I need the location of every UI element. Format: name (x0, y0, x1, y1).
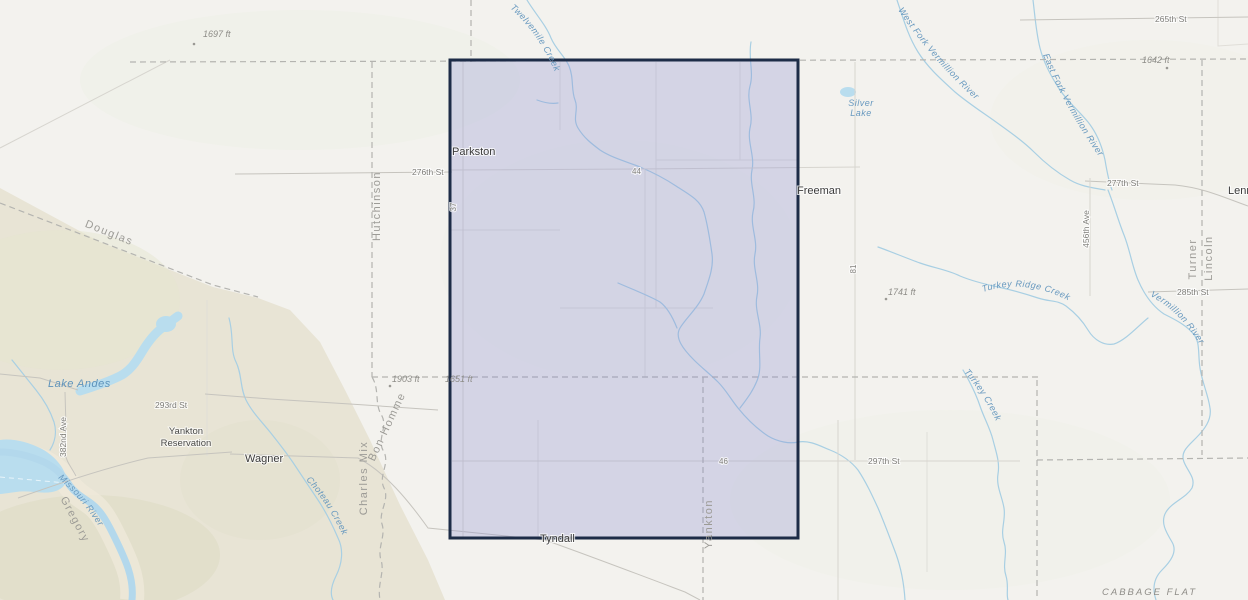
city-label-lennox: Lennox (1228, 185, 1248, 197)
map-viewport[interactable]: Parkston Freeman Lennox Wagner Tyndall Y… (0, 0, 1248, 600)
city-label-tyndall: Tyndall (540, 533, 575, 545)
silver-lake-waterbody (840, 87, 856, 97)
area-label-cabbage-flat: CABBAGE FLAT (1102, 587, 1197, 598)
road-label-382nd-ave: 382nd Ave (58, 417, 68, 457)
road-label-277th-st: 277th St (1107, 178, 1139, 188)
road-label-276th-st: 276th St (412, 167, 444, 177)
elevation-label-1903: 1903 ft (392, 374, 420, 384)
area-label-yankton-reservation-line1: Yankton (169, 426, 203, 437)
county-label-yankton: Yankton (703, 499, 715, 549)
road-label-293rd-st: 293rd St (155, 400, 188, 410)
elevation-label-1642: 1642 ft (1142, 55, 1170, 65)
county-label-hutchinson: Hutchinson (371, 171, 383, 241)
lake-label-silver-lake-line2: Lake (850, 108, 872, 118)
highway-label-44: 44 (632, 167, 641, 176)
selection-rectangle[interactable] (450, 60, 798, 538)
map-canvas[interactable]: Parkston Freeman Lennox Wagner Tyndall Y… (0, 0, 1248, 600)
lake-label-lake-andes: Lake Andes (48, 378, 111, 390)
road-label-285th-st: 285th St (1177, 287, 1209, 297)
elevation-label-1697: 1697 ft (203, 29, 231, 39)
road-label-265th-st: 265th St (1155, 14, 1187, 24)
highway-label-81: 81 (849, 264, 858, 273)
area-label-yankton-reservation-line2: Reservation (161, 438, 212, 449)
city-label-parkston: Parkston (452, 146, 495, 158)
county-label-turner: Turner (1187, 239, 1199, 280)
highway-label-37: 37 (449, 202, 458, 211)
county-label-lincoln: Lincoln (1203, 235, 1215, 280)
road-label-456th-ave: 456th Ave (1081, 210, 1091, 248)
road-label-297th-st: 297th St (868, 456, 900, 466)
highway-label-46: 46 (719, 457, 728, 466)
city-label-freeman: Freeman (797, 185, 841, 197)
city-label-wagner: Wagner (245, 453, 283, 465)
elevation-label-1651: 1651 ft (445, 374, 473, 384)
lake-label-silver-lake-line1: Silver (848, 98, 874, 108)
lake-andes-waterbody-lobe (156, 316, 176, 332)
elevation-label-1741: 1741 ft (888, 287, 916, 297)
